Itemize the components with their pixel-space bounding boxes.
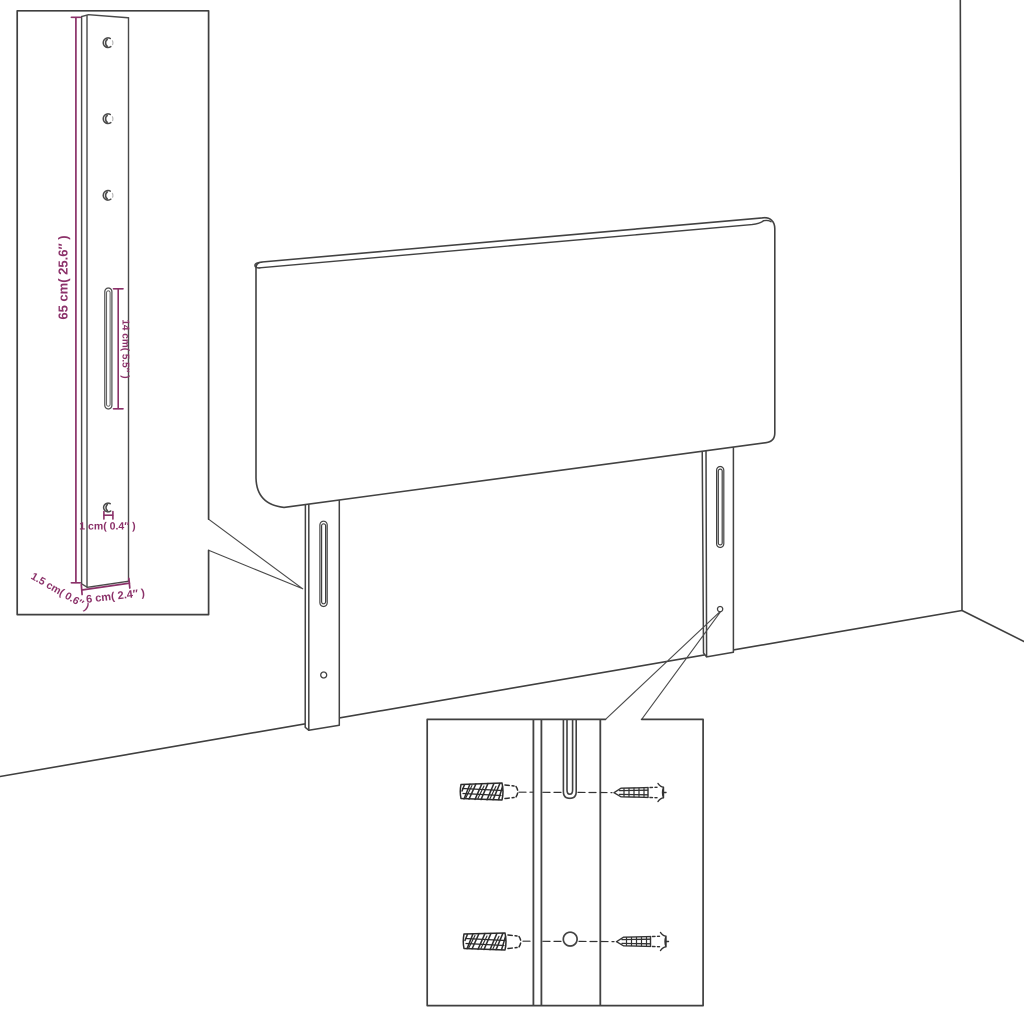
svg-text:6 cm( 2.4″ ): 6 cm( 2.4″ ) (85, 587, 145, 606)
svg-text:1 cm( 0.4″ ): 1 cm( 0.4″ ) (79, 521, 135, 533)
svg-text:14 cm( 5.5″ ): 14 cm( 5.5″ ) (119, 319, 130, 378)
svg-text:65 cm( 25.6″ ): 65 cm( 25.6″ ) (56, 235, 71, 319)
